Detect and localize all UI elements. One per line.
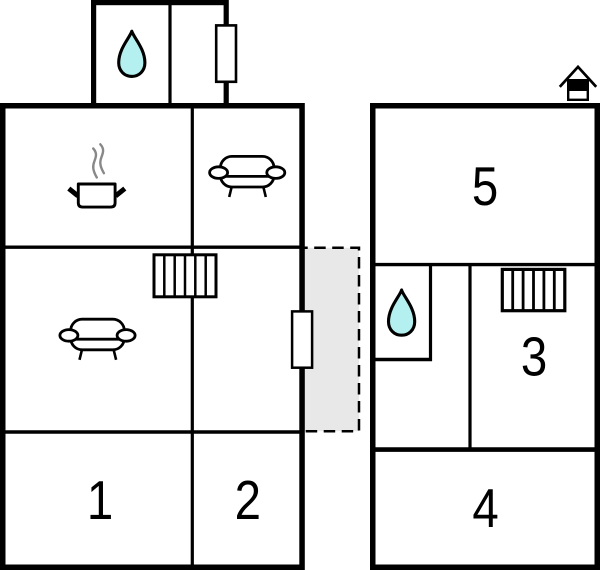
svg-text:3: 3 xyxy=(521,326,547,387)
svg-text:5: 5 xyxy=(472,156,498,217)
svg-text:2: 2 xyxy=(235,470,261,531)
svg-text:1: 1 xyxy=(87,470,113,531)
svg-text:4: 4 xyxy=(472,478,498,539)
